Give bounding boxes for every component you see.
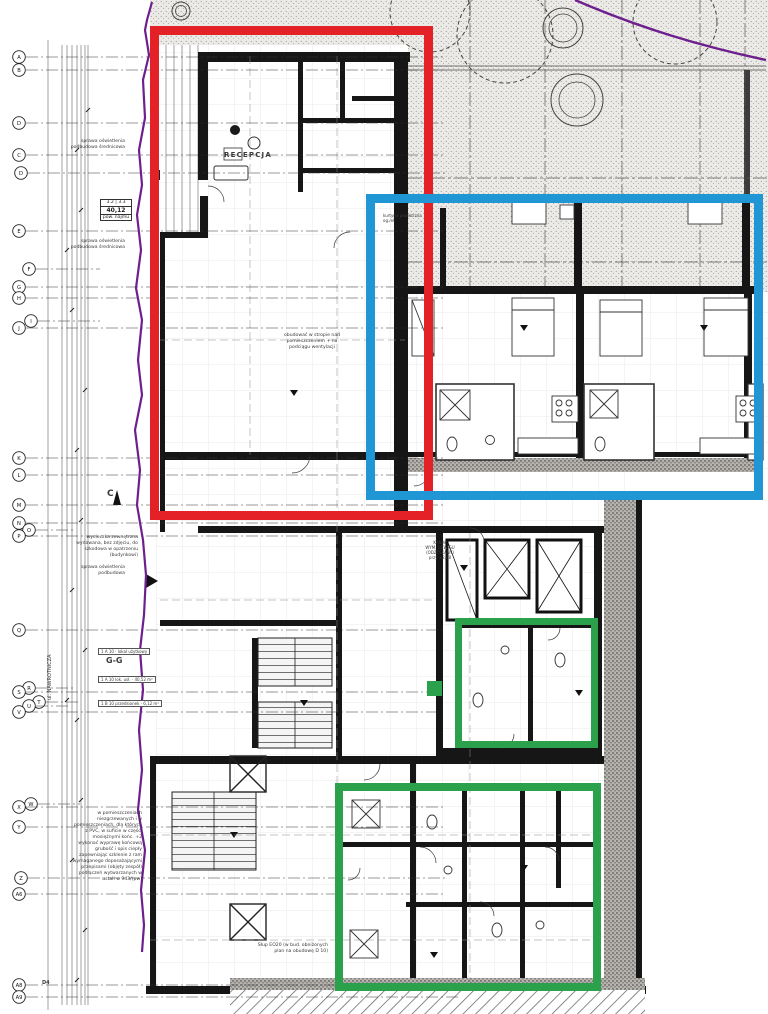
annotation-text: podbudowa średnicowa <box>60 246 125 251</box>
annotation-text: podbudowa <box>60 572 125 577</box>
annotation-text: G-G <box>106 657 122 665</box>
area-box-row3: pow. najmu <box>101 215 131 221</box>
grid-marker-k: K <box>17 456 21 462</box>
area-label-box: 3.2 | 3.3 40,12 pow. najmu <box>100 199 132 221</box>
annotation-text: przy +2,08 <box>420 556 460 560</box>
grid-marker-f: F <box>28 267 31 273</box>
grid-marker-l: L <box>18 473 21 479</box>
grid-marker-g: G <box>17 285 21 291</box>
area-box-value: 40,12 <box>101 206 131 215</box>
floorplan-canvas: ABDCDEFGHIJKLMNOPQRSTUVWXYZA6A8A9 3.2 | … <box>0 0 768 1014</box>
annotation-text: podbudowa średnicowa <box>60 146 125 151</box>
grid-marker-a: A <box>17 55 21 61</box>
annotation-text: (budynkowi) <box>70 554 138 559</box>
annotation-text: 1 A 10 · lokal użytkowy <box>98 648 150 655</box>
annotation-text: 1 A 10 lok. usł. · 40,52 m² <box>98 676 156 683</box>
annotation-text: ustali w 943/(pw) <box>66 878 142 883</box>
annotation-text: D4 <box>42 981 50 986</box>
annotation-text: RECEPCJA <box>224 152 272 159</box>
grid-marker-o: O <box>27 528 31 534</box>
bottom-hatch-strip <box>230 990 645 1014</box>
annotation-text: plan na obudowę D 10) <box>250 950 328 955</box>
grid-marker-p: P <box>17 534 20 540</box>
grid-marker-n: N <box>17 521 21 527</box>
grid-marker-z: Z <box>19 876 23 882</box>
grid-marker-m: M <box>17 503 21 509</box>
grid-marker-u: U <box>27 704 31 710</box>
grid-marker-b: B <box>17 68 21 74</box>
grid-marker-r: R <box>27 686 31 692</box>
grid-marker-v: V <box>17 710 21 716</box>
grid-marker-h: H <box>17 296 21 302</box>
grid-marker-d: D <box>17 121 21 127</box>
grid-marker-d: D <box>19 171 23 177</box>
grid-marker-q: Q <box>17 628 21 634</box>
grid-marker-a8: A8 <box>16 983 23 989</box>
grid-marker-s: S <box>17 690 20 696</box>
grid-marker-a9: A9 <box>16 995 23 1001</box>
grid-marker-c: C <box>17 153 21 159</box>
grid-marker-x: X <box>17 805 21 811</box>
annotation-text: 1 B 10 przedsionek · 6,12 m² <box>98 700 162 707</box>
annotation-text: og./el. <box>383 219 395 223</box>
annotation-text: C <box>107 490 114 499</box>
annotation-text: ul. NAWROTNICZA <box>48 654 53 700</box>
annotation-text: podciągu wentylacji <box>284 346 340 351</box>
grid-marker-e: E <box>17 229 20 235</box>
grid-marker-a6: A6 <box>16 892 23 898</box>
